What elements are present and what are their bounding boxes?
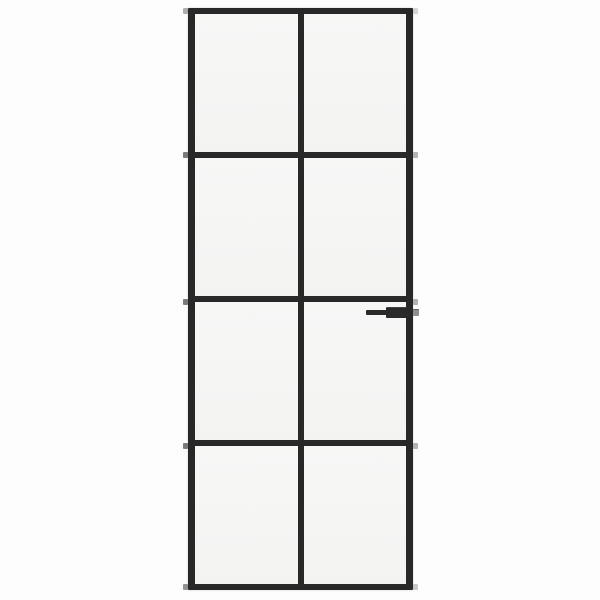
rail-end-nub xyxy=(183,443,188,449)
glass-pane-grid xyxy=(195,14,406,584)
glass-pane xyxy=(304,446,407,584)
rail-end-nub xyxy=(413,584,418,590)
rail-end-nub xyxy=(413,443,418,449)
glass-door xyxy=(188,8,413,590)
rail-end-nub xyxy=(413,299,418,305)
glass-pane xyxy=(195,302,298,440)
rail-end-nub xyxy=(413,152,418,158)
rail-end-nub xyxy=(183,299,188,305)
rail-end-nub xyxy=(413,8,418,14)
glass-pane xyxy=(195,158,298,296)
door-handle-base xyxy=(386,307,407,318)
rail-end-nub xyxy=(183,584,188,590)
glass-pane xyxy=(195,446,298,584)
door-handle-lever xyxy=(366,310,387,315)
glass-pane xyxy=(304,14,407,152)
glass-pane xyxy=(304,302,407,440)
door-latch-stub xyxy=(413,309,419,316)
glass-pane xyxy=(195,14,298,152)
rail-end-nub xyxy=(183,8,188,14)
product-image-stage xyxy=(0,0,600,600)
glass-pane xyxy=(304,158,407,296)
rail-end-nub xyxy=(183,152,188,158)
